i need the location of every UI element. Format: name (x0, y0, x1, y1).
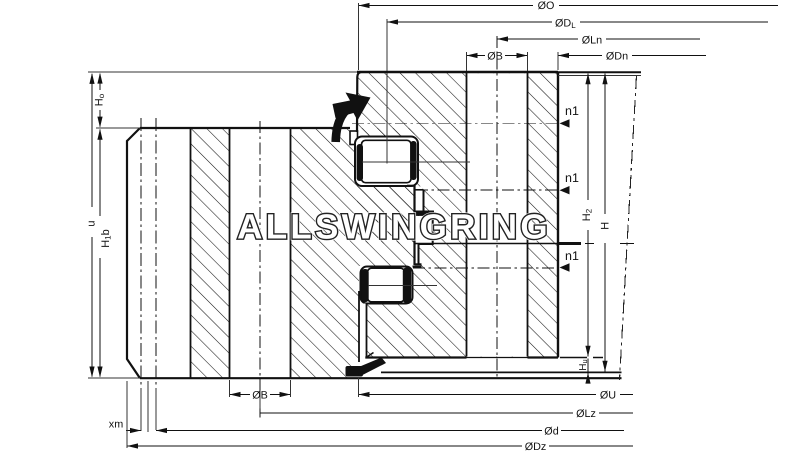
svg-text:u: u (86, 220, 98, 226)
svg-text:xm: xm (109, 419, 123, 431)
svg-text:n1: n1 (565, 249, 579, 263)
svg-text:ØDL: ØDL (555, 18, 576, 31)
svg-text:ØB: ØB (252, 389, 268, 401)
svg-text:ØB: ØB (487, 51, 503, 63)
svg-text:n1: n1 (565, 171, 579, 185)
svg-text:ØDz: ØDz (525, 441, 547, 453)
svg-text:Ød: Ød (544, 426, 558, 438)
svg-text:ØLz: ØLz (576, 408, 596, 420)
svg-text:H2: H2 (581, 208, 594, 221)
svg-text:ALLSWINGRING: ALLSWINGRING (237, 208, 551, 247)
svg-text:ØDn: ØDn (606, 51, 628, 63)
svg-text:Hu: Hu (578, 359, 589, 370)
svg-text:H1b: H1b (100, 229, 113, 248)
svg-text:ØLn: ØLn (582, 35, 602, 47)
svg-text:ØU: ØU (600, 389, 616, 401)
svg-text:ØO: ØO (538, 0, 555, 12)
svg-text:Ho: Ho (94, 93, 107, 106)
svg-text:H: H (599, 222, 611, 230)
svg-text:n1: n1 (565, 104, 579, 118)
